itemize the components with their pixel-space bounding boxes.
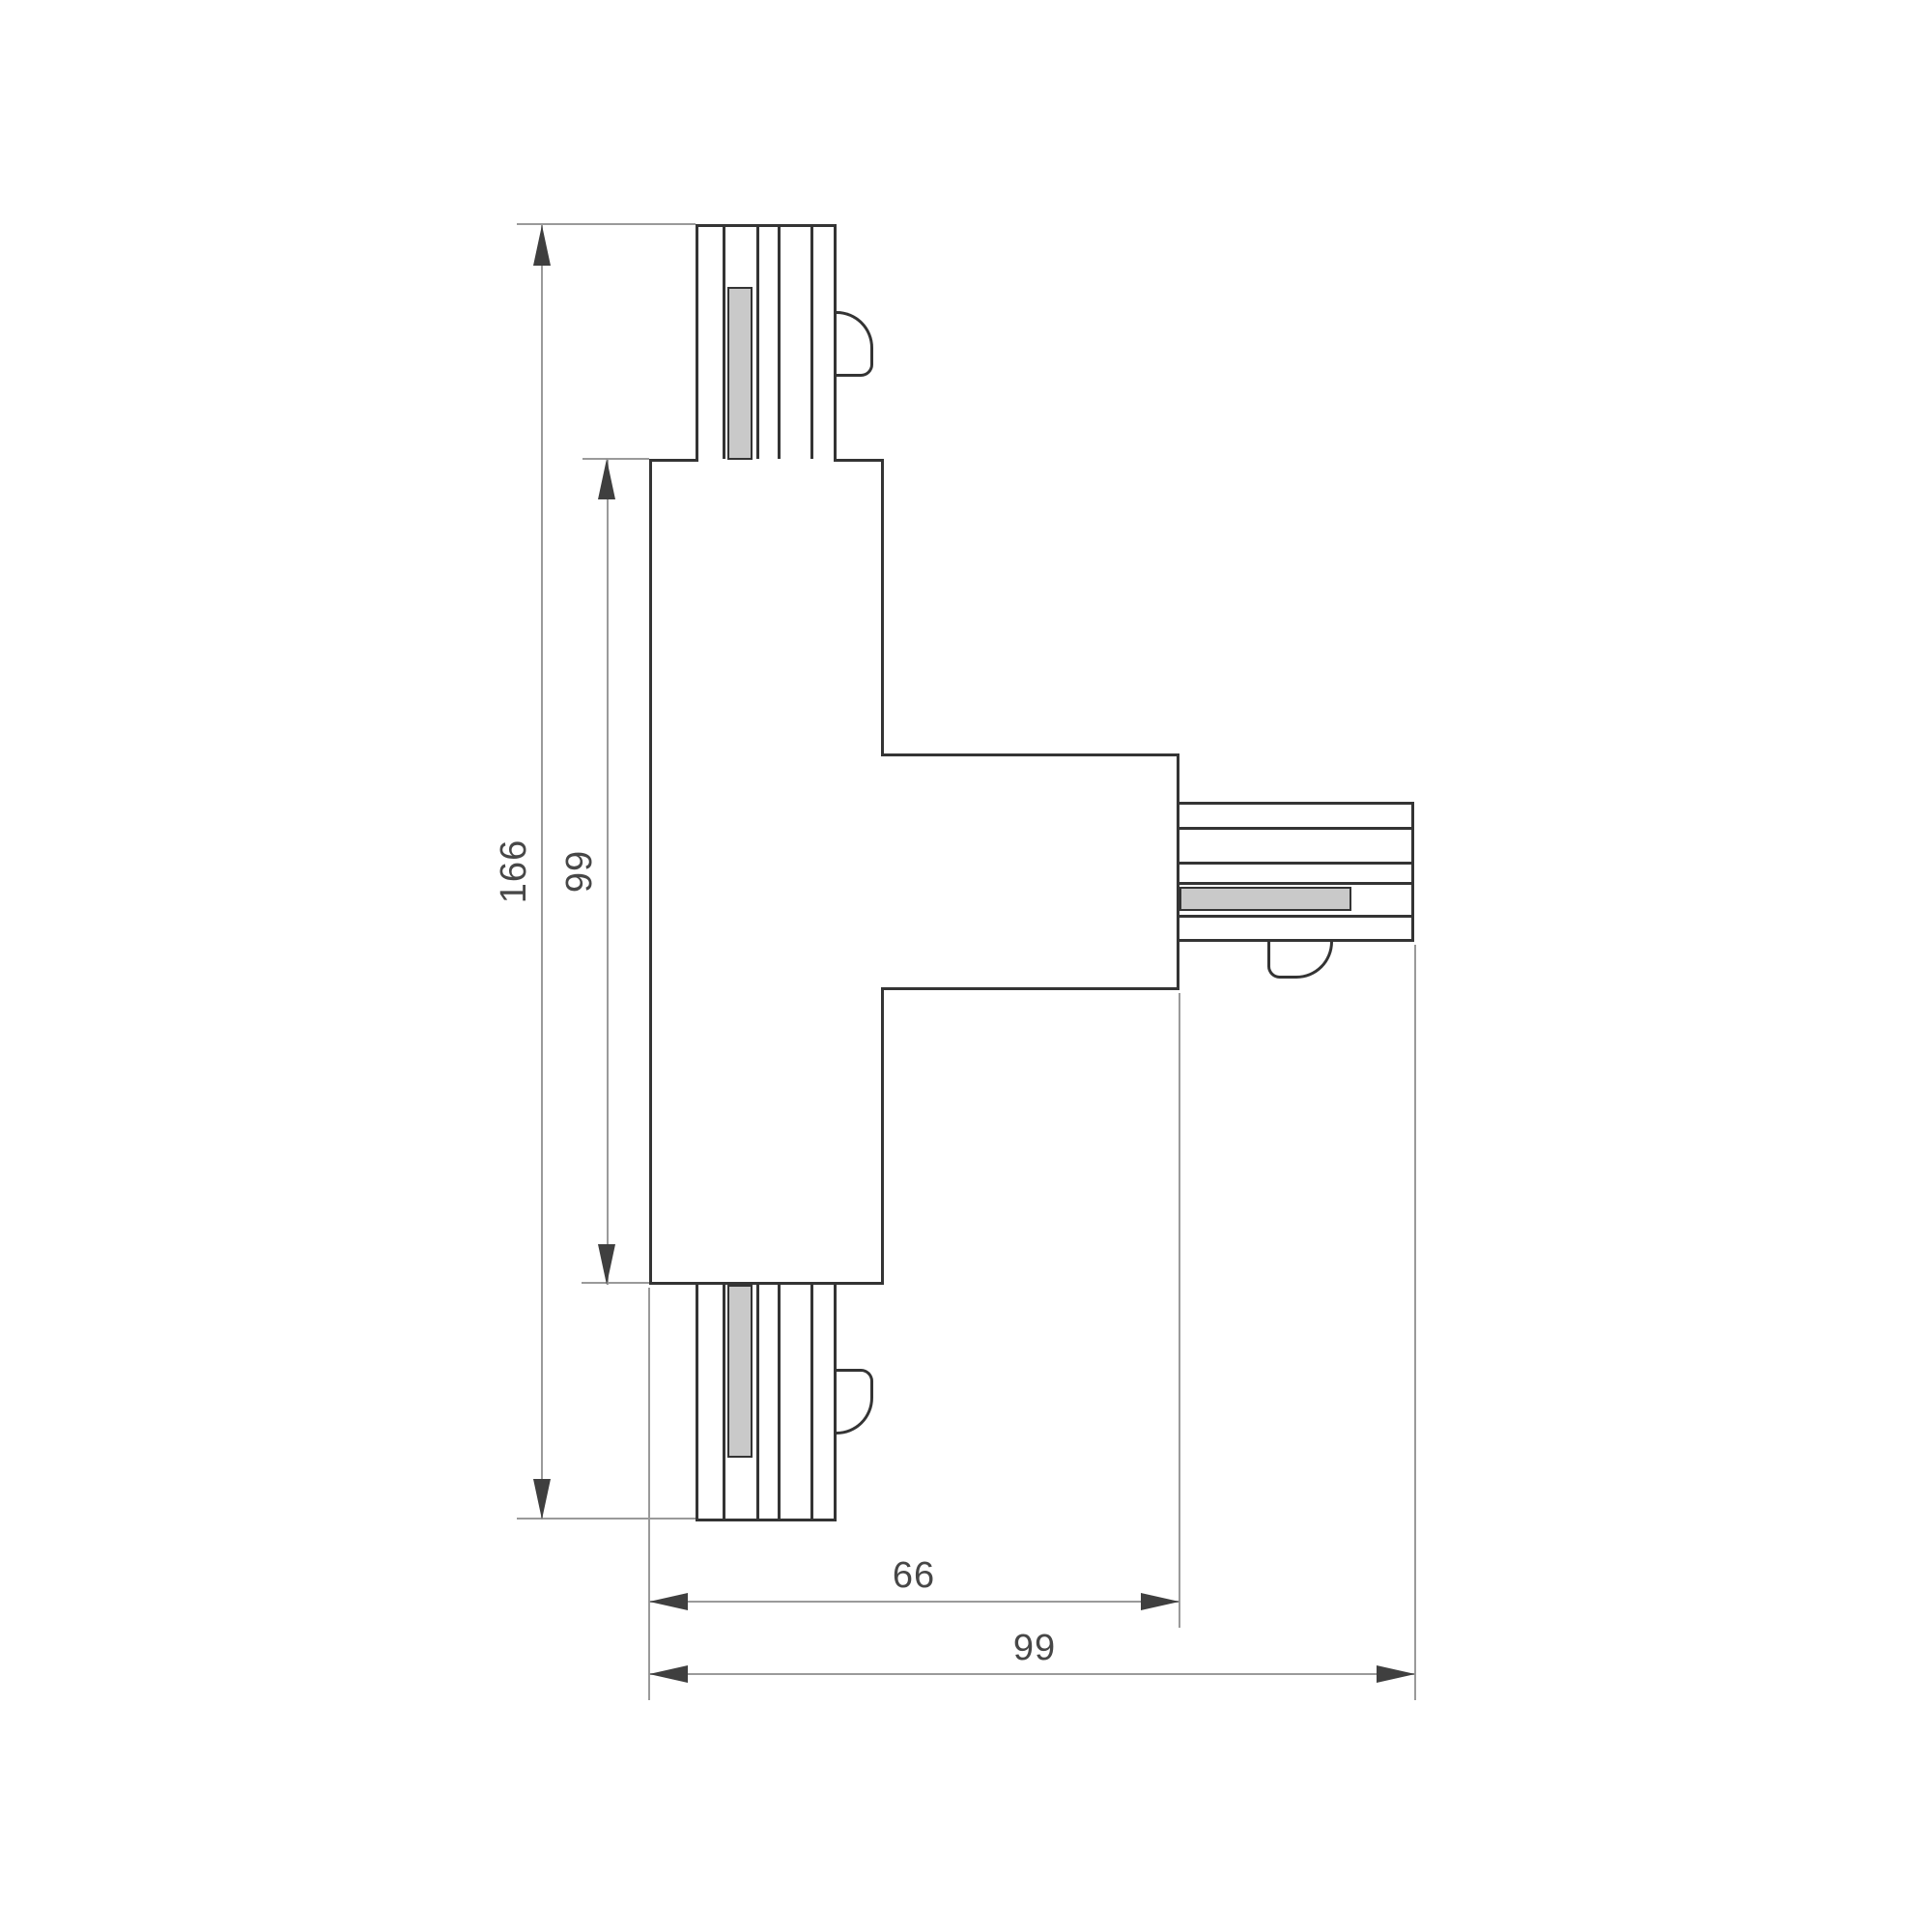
track-groove-line xyxy=(778,1285,781,1521)
extension-line xyxy=(582,458,649,460)
track-groove-line xyxy=(1179,882,1414,885)
track-groove-line xyxy=(1179,827,1414,830)
arrowhead-up xyxy=(533,225,551,266)
connector-body xyxy=(649,459,884,1285)
arrowhead-right xyxy=(1377,1665,1415,1683)
track-groove-line xyxy=(810,224,813,459)
extension-line xyxy=(648,1288,650,1700)
dimension-line-overall-width xyxy=(649,1673,1415,1675)
track-groove-line xyxy=(810,1285,813,1521)
arrowhead-right xyxy=(1141,1593,1179,1610)
drawing-canvas: 166 99 66 99 xyxy=(0,0,1932,1932)
body-arm-junction-mask xyxy=(880,756,889,987)
connector-arm-right xyxy=(884,753,1179,990)
dimension-label-overall-width: 99 xyxy=(1013,1630,1056,1666)
arrowhead-left xyxy=(649,1593,688,1610)
latch-tab-top xyxy=(837,311,873,377)
track-end-top xyxy=(696,224,837,462)
extension-line xyxy=(1414,945,1416,1700)
dimension-line-overall-height xyxy=(541,225,543,1520)
arrowhead-down xyxy=(533,1479,551,1520)
arrowhead-up xyxy=(598,459,615,499)
track-groove-line xyxy=(1179,915,1414,918)
track-groove-line xyxy=(723,1285,725,1521)
extension-line xyxy=(1179,993,1180,1628)
track-groove-line xyxy=(1179,862,1414,865)
dimension-line-body-height xyxy=(607,459,609,1285)
track-groove-line xyxy=(756,224,759,459)
track-groove-line xyxy=(756,1285,759,1521)
contact-strip-right xyxy=(1179,887,1351,911)
dimension-line-arm-width xyxy=(649,1601,1179,1603)
dimension-label-overall-height: 166 xyxy=(496,839,532,903)
dimension-label-arm-width: 66 xyxy=(893,1557,935,1594)
latch-tab-bottom xyxy=(837,1369,873,1435)
extension-line xyxy=(582,1282,649,1284)
contact-strip-bottom xyxy=(727,1285,753,1458)
track-groove-line xyxy=(778,224,781,459)
arrowhead-left xyxy=(649,1665,688,1683)
track-end-right xyxy=(1179,802,1414,942)
track-groove-line xyxy=(723,224,725,459)
dimension-label-body-height: 99 xyxy=(561,850,598,893)
track-end-bottom xyxy=(696,1285,837,1521)
arrowhead-down xyxy=(598,1244,615,1285)
latch-tab-right xyxy=(1267,942,1333,979)
contact-strip-top xyxy=(727,287,753,460)
